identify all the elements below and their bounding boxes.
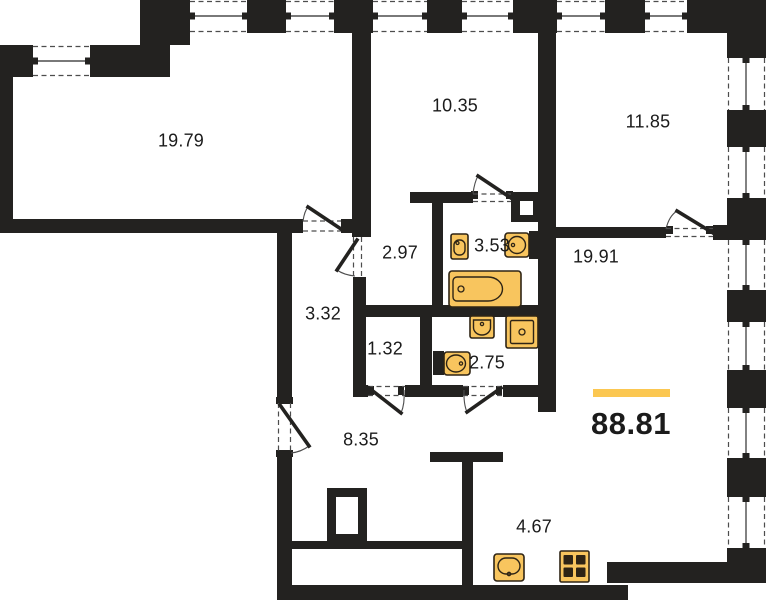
area-label-bathroom2: 2.75 bbox=[469, 353, 505, 374]
area-label-room1: 19.79 bbox=[158, 131, 204, 152]
door-room1-corridor bbox=[303, 207, 341, 231]
entrance-door bbox=[279, 403, 310, 453]
shower-tray-icon bbox=[506, 316, 538, 348]
toilet-icon bbox=[505, 231, 538, 259]
walls bbox=[0, 0, 766, 600]
floor-plan-drawing bbox=[0, 0, 766, 600]
area-label-living: 19.91 bbox=[573, 247, 619, 268]
area-label-kitchen: 4.67 bbox=[516, 517, 552, 538]
total-area-accent-bar bbox=[593, 389, 670, 397]
floor-plan: 19.79 10.35 11.85 2.97 3.53 19.91 3.32 1… bbox=[0, 0, 766, 600]
washbasin-icon bbox=[470, 316, 494, 338]
fixtures bbox=[433, 231, 589, 582]
kitchen-sink-icon bbox=[494, 554, 524, 581]
door-corridor-hall bbox=[337, 237, 362, 277]
area-label-room2: 10.35 bbox=[432, 96, 478, 117]
windows bbox=[33, 2, 765, 549]
door-room2-bathroom bbox=[473, 176, 511, 202]
area-label-hallway: 8.35 bbox=[343, 430, 379, 451]
bathtub-icon bbox=[449, 271, 521, 307]
area-label-corridor: 3.32 bbox=[305, 304, 341, 325]
total-area-label: 88.81 bbox=[591, 406, 671, 442]
area-label-bathroom: 3.53 bbox=[474, 236, 510, 257]
area-label-room3: 11.85 bbox=[626, 112, 671, 133]
toilet-icon bbox=[451, 234, 468, 259]
area-label-hall: 2.97 bbox=[382, 243, 418, 264]
area-label-storage: 1.32 bbox=[367, 339, 403, 360]
toilet-icon bbox=[433, 351, 470, 375]
stove-icon bbox=[560, 551, 589, 582]
door-room3-living bbox=[666, 211, 713, 237]
